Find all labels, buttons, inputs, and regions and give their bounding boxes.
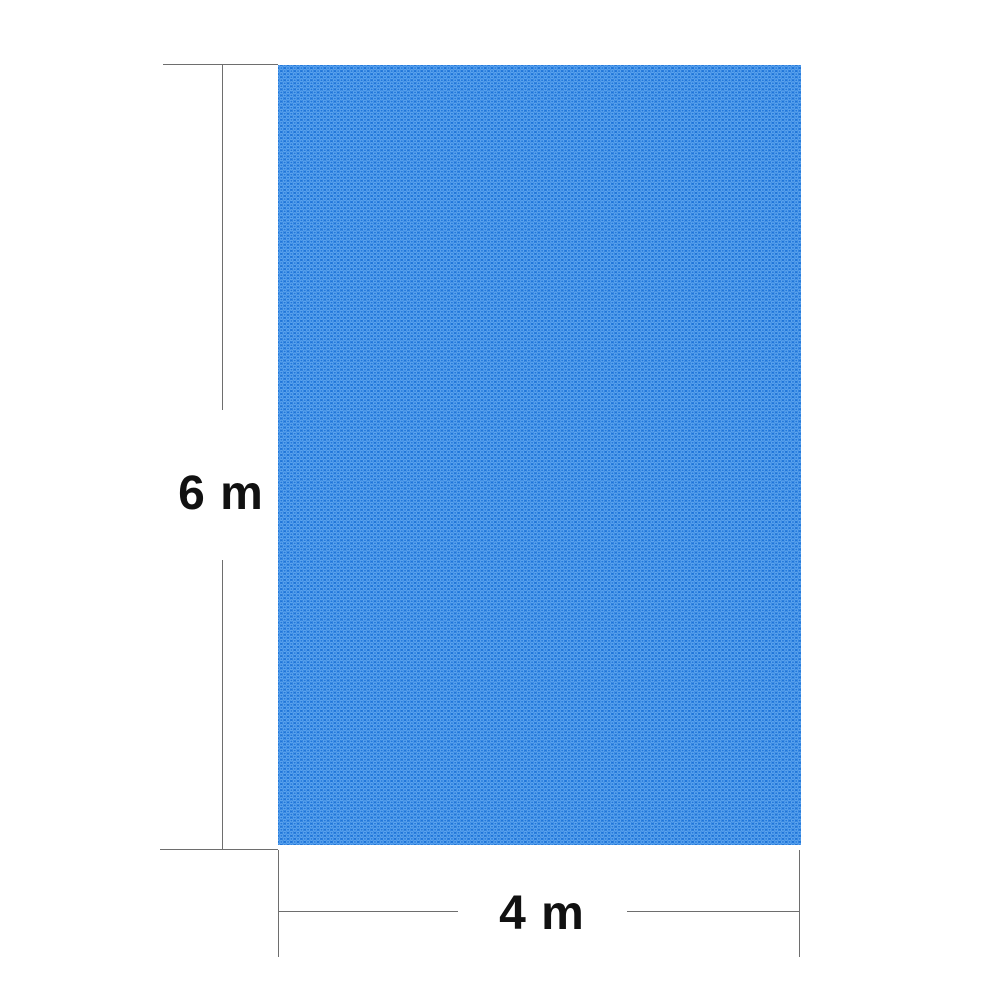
width-dimension-line-right [627, 911, 799, 912]
width-dimension-line-left [278, 911, 458, 912]
width-extension-line-right [799, 850, 800, 957]
bottom-extension-line [160, 849, 278, 850]
top-extension-line [163, 64, 278, 65]
width-extension-line-left [278, 850, 279, 957]
height-dimension-line-upper [222, 64, 223, 410]
dimension-diagram: 6 m 4 m [0, 0, 1000, 1000]
height-dimension-line-lower [222, 560, 223, 849]
width-label: 4 m [499, 890, 585, 938]
height-label: 6 m [178, 470, 264, 518]
pool-cover-rectangle [278, 65, 801, 845]
